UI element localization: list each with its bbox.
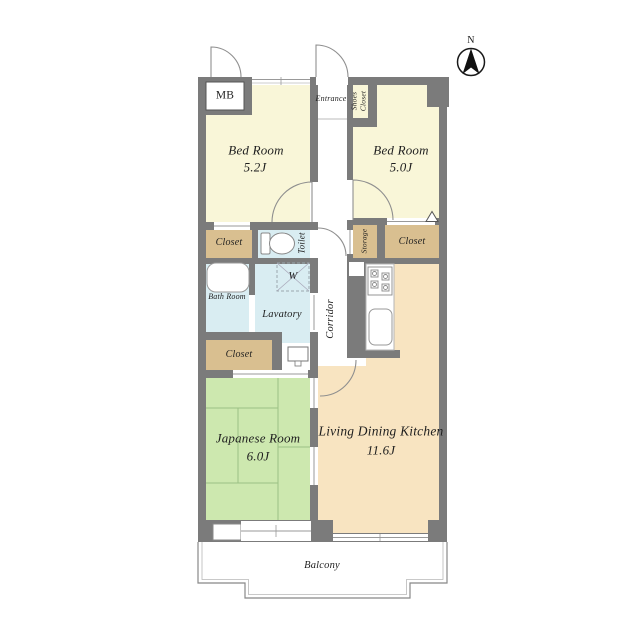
stove-icon bbox=[368, 267, 392, 295]
closet-japanese-label: Closet bbox=[226, 350, 253, 360]
shoes-closet-label: Shoes Closet bbox=[350, 85, 367, 117]
closet-bedroom2-label: Closet bbox=[399, 237, 426, 247]
bedroom2-area-label: 5.0J bbox=[390, 161, 413, 174]
mb-door-arc bbox=[211, 47, 241, 77]
toilet-icon bbox=[261, 233, 295, 254]
ldk-label: Living Dining Kitchen bbox=[319, 424, 444, 438]
japanese-room-area-label: 6.0J bbox=[247, 450, 270, 463]
washing-machine-label: W bbox=[289, 272, 298, 283]
ldk-area-label: 11.6J bbox=[367, 444, 396, 457]
entrance-door-arc bbox=[316, 45, 348, 77]
lavatory-label: Lavatory bbox=[262, 310, 302, 321]
pipe-space bbox=[349, 262, 364, 276]
bathroom-label: Bath Room bbox=[208, 293, 246, 301]
bedroom1-label: Bed Room bbox=[228, 144, 283, 157]
compass-icon bbox=[458, 49, 485, 76]
north-label: N bbox=[467, 36, 474, 46]
bedroom2-label: Bed Room bbox=[373, 144, 428, 157]
bedroom1-area-label: 5.2J bbox=[244, 161, 267, 174]
small-window bbox=[213, 524, 241, 540]
bathtub-icon bbox=[207, 263, 249, 292]
sink-icon bbox=[369, 309, 392, 345]
closet-bedroom1-label: Closet bbox=[216, 238, 243, 248]
toilet-label: Toilet bbox=[298, 232, 307, 253]
storage-label: Storage bbox=[360, 229, 368, 254]
meter-box-label: MB bbox=[216, 90, 234, 102]
balcony-label: Balcony bbox=[304, 561, 340, 572]
japanese-room-label: Japanese Room bbox=[216, 432, 301, 445]
corridor-label: Corridor bbox=[326, 299, 337, 339]
entrance-opening bbox=[316, 77, 348, 85]
floor-plan: MB Bed Room 5.2J Bed Room 5.0J Entrance … bbox=[0, 0, 640, 640]
entrance-label: Entrance bbox=[316, 95, 347, 103]
lavatory-area bbox=[255, 262, 310, 343]
